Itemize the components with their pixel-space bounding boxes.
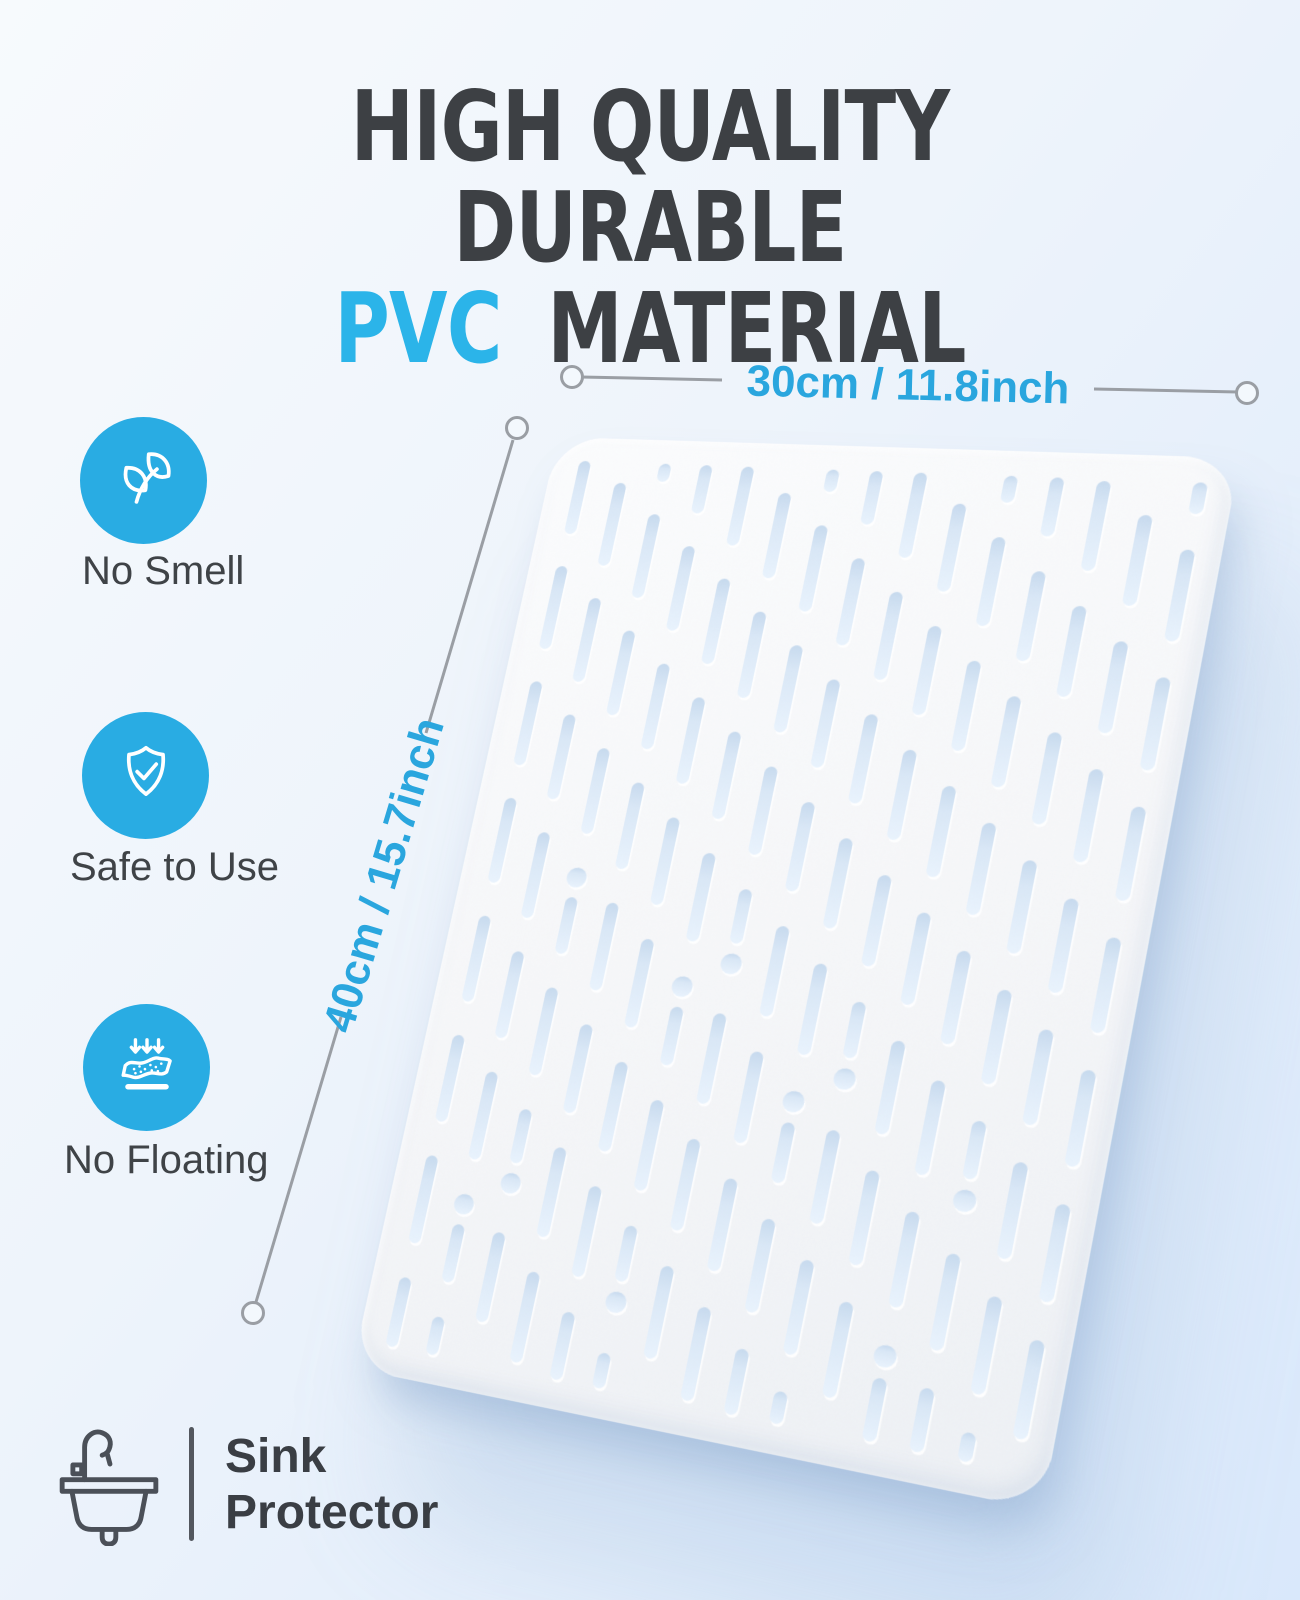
leaf-icon — [110, 444, 178, 517]
product-name: Sink Protector — [225, 1429, 438, 1541]
feature-circle-no-smell — [80, 417, 207, 544]
no-floating-icon — [113, 1031, 181, 1104]
title-accent-pvc: PVC — [334, 272, 501, 385]
height-endpoint-bottom — [243, 1303, 264, 1324]
feature-circle-no-floating — [83, 1004, 210, 1131]
sink-icon — [55, 1424, 163, 1551]
width-endpoint-right — [1237, 383, 1258, 404]
height-endpoint-top — [507, 418, 528, 439]
product-name-line-1: Sink — [225, 1429, 438, 1485]
mat-grain-texture — [352, 437, 1240, 1510]
height-line-bottom — [256, 1017, 341, 1302]
title-line-1: HIGH QUALITY DURABLE — [143, 76, 1157, 278]
width-line-right — [1094, 389, 1238, 392]
title-line-2: PVC MATERIAL — [143, 278, 1157, 379]
height-dimension-label: 40cm / 15.7inch — [314, 712, 454, 1038]
shield-check-icon — [112, 739, 180, 812]
feature-label-safe-to-use: Safe to Use — [70, 845, 279, 890]
feature-label-no-floating: No Floating — [64, 1138, 269, 1183]
title-line2-rest: MATERIAL — [547, 272, 965, 385]
mat-slot-pattern — [352, 437, 1240, 1510]
page-title: HIGH QUALITY DURABLE PVC MATERIAL — [143, 76, 1157, 379]
product-infographic: HIGH QUALITY DURABLE PVC MATERIAL — [0, 0, 1300, 1600]
feature-circle-safe-to-use — [82, 712, 209, 839]
height-line-top — [426, 440, 513, 733]
footer-divider — [189, 1427, 194, 1541]
product-name-line-2: Protector — [225, 1485, 438, 1541]
sink-mat-product-photo — [352, 437, 1240, 1510]
feature-label-no-smell: No Smell — [82, 549, 244, 594]
